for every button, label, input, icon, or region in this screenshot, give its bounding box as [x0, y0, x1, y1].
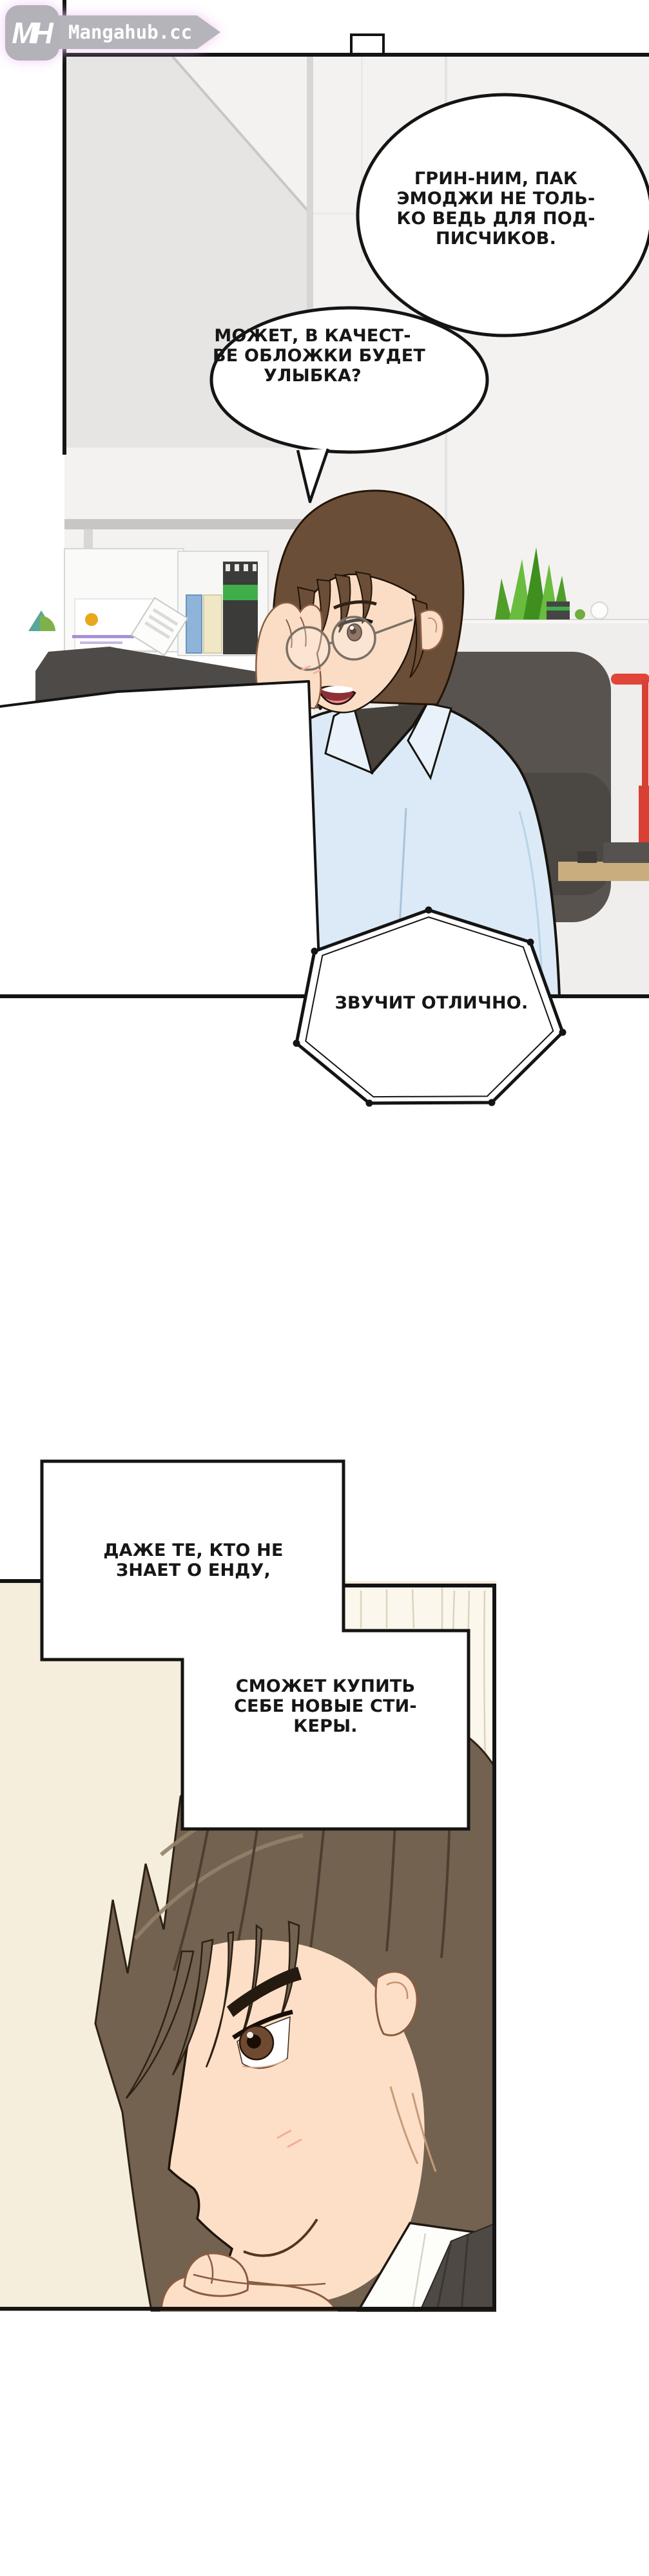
speech-bubbles-overlay — [0, 0, 649, 2576]
bubble-grin-text: ГРИН-НИМ, ПАК ЭМОДЖИ НЕ ТОЛЬ- КО ВЕДЬ ДЛ… — [369, 169, 623, 249]
bubble-buy-text: СМОЖЕТ КУПИТЬ СЕБЕ НОВЫЕ СТИ- КЕРЫ. — [186, 1676, 465, 1736]
bubble-cover-text: МОЖЕТ, В КАЧЕСТ- ВЕ ОБЛОЖКИ БУДЕТ УЛЫБКА… — [213, 326, 412, 386]
logo-banner: Mangahub.cc — [53, 15, 220, 49]
logo-text: Mangahub.cc — [68, 21, 192, 43]
bubble-even-text: ДАЖЕ ТЕ, КТО НЕ ЗНАЕТ О ЕНДУ, — [45, 1540, 342, 1580]
site-logo: Mangahub.cc MH — [4, 4, 223, 62]
bubble-cover-tail — [298, 449, 328, 502]
bubble-boxes-shape — [42, 1461, 469, 1829]
logo-monogram: MH — [5, 5, 59, 61]
manga-page: ГРИН-НИМ, ПАК ЭМОДЖИ НЕ ТОЛЬ- КО ВЕДЬ ДЛ… — [0, 0, 649, 2576]
bubble-sounds-text: ЗВУЧИТ ОТЛИЧНО. — [330, 993, 533, 1013]
